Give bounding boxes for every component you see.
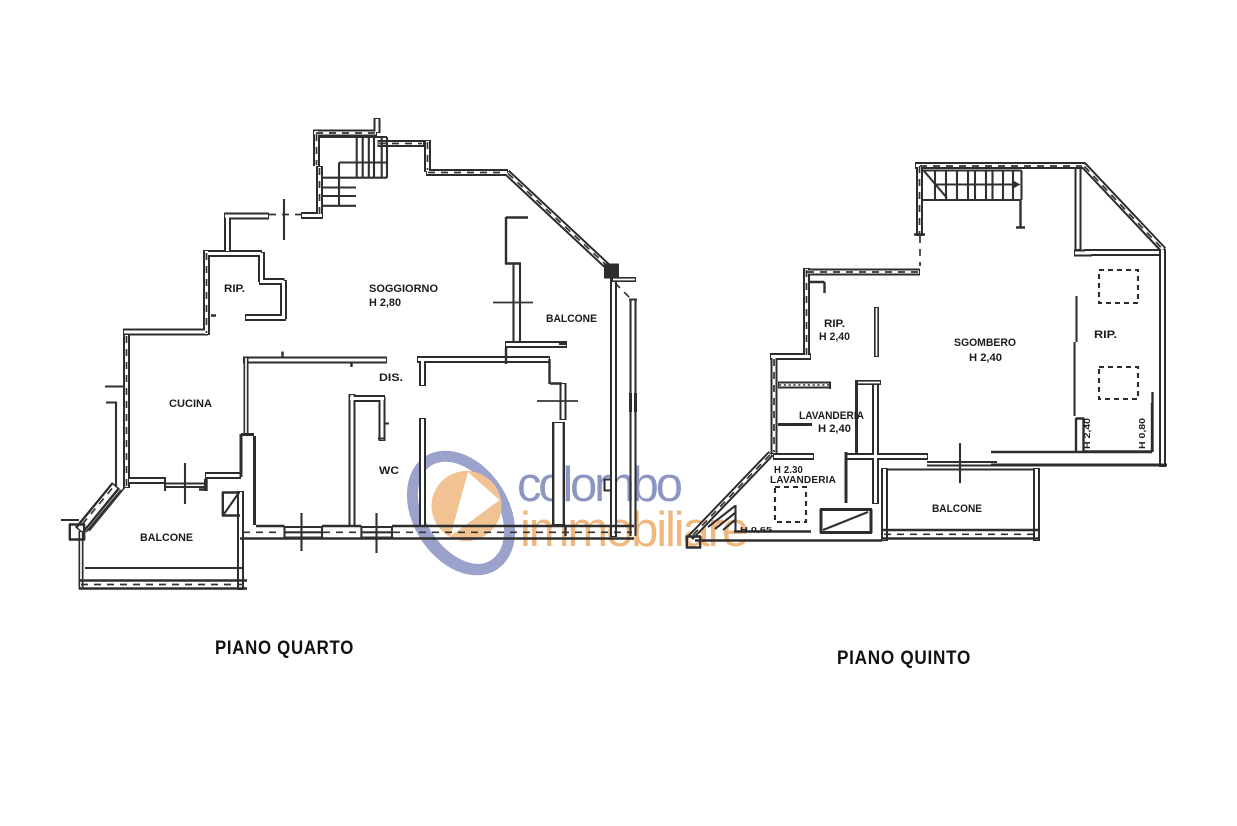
svg-text:H 2,40: H 2,40 (818, 423, 851, 435)
svg-text:RIP.: RIP. (224, 283, 245, 295)
svg-text:BALCONE: BALCONE (140, 532, 193, 544)
svg-text:H 0,65: H 0,65 (740, 525, 772, 534)
svg-text:DIS.: DIS. (379, 372, 403, 384)
svg-text:RIP.: RIP. (824, 318, 845, 330)
svg-text:BALCONE: BALCONE (546, 313, 597, 325)
svg-text:SOGGIORNO: SOGGIORNO (369, 283, 438, 295)
svg-text:BALCONE: BALCONE (932, 503, 982, 515)
svg-text:H 2,40: H 2,40 (969, 352, 1002, 364)
svg-text:RIP.: RIP. (1094, 329, 1117, 341)
svg-text:H 2,40: H 2,40 (1083, 417, 1092, 449)
svg-text:H 0,80: H 0,80 (1138, 417, 1147, 449)
svg-text:LAVANDERIA: LAVANDERIA (799, 410, 864, 422)
svg-text:PIANO QUARTO: PIANO QUARTO (215, 638, 354, 659)
svg-text:H 2,40: H 2,40 (819, 331, 850, 343)
svg-text:PIANO QUINTO: PIANO QUINTO (837, 648, 971, 669)
svg-text:CUCINA: CUCINA (169, 398, 212, 410)
svg-text:SGOMBERO: SGOMBERO (954, 337, 1016, 349)
svg-text:LAVANDERIA: LAVANDERIA (770, 475, 836, 486)
svg-text:WC: WC (379, 465, 399, 477)
svg-text:H 2,80: H 2,80 (369, 297, 401, 309)
